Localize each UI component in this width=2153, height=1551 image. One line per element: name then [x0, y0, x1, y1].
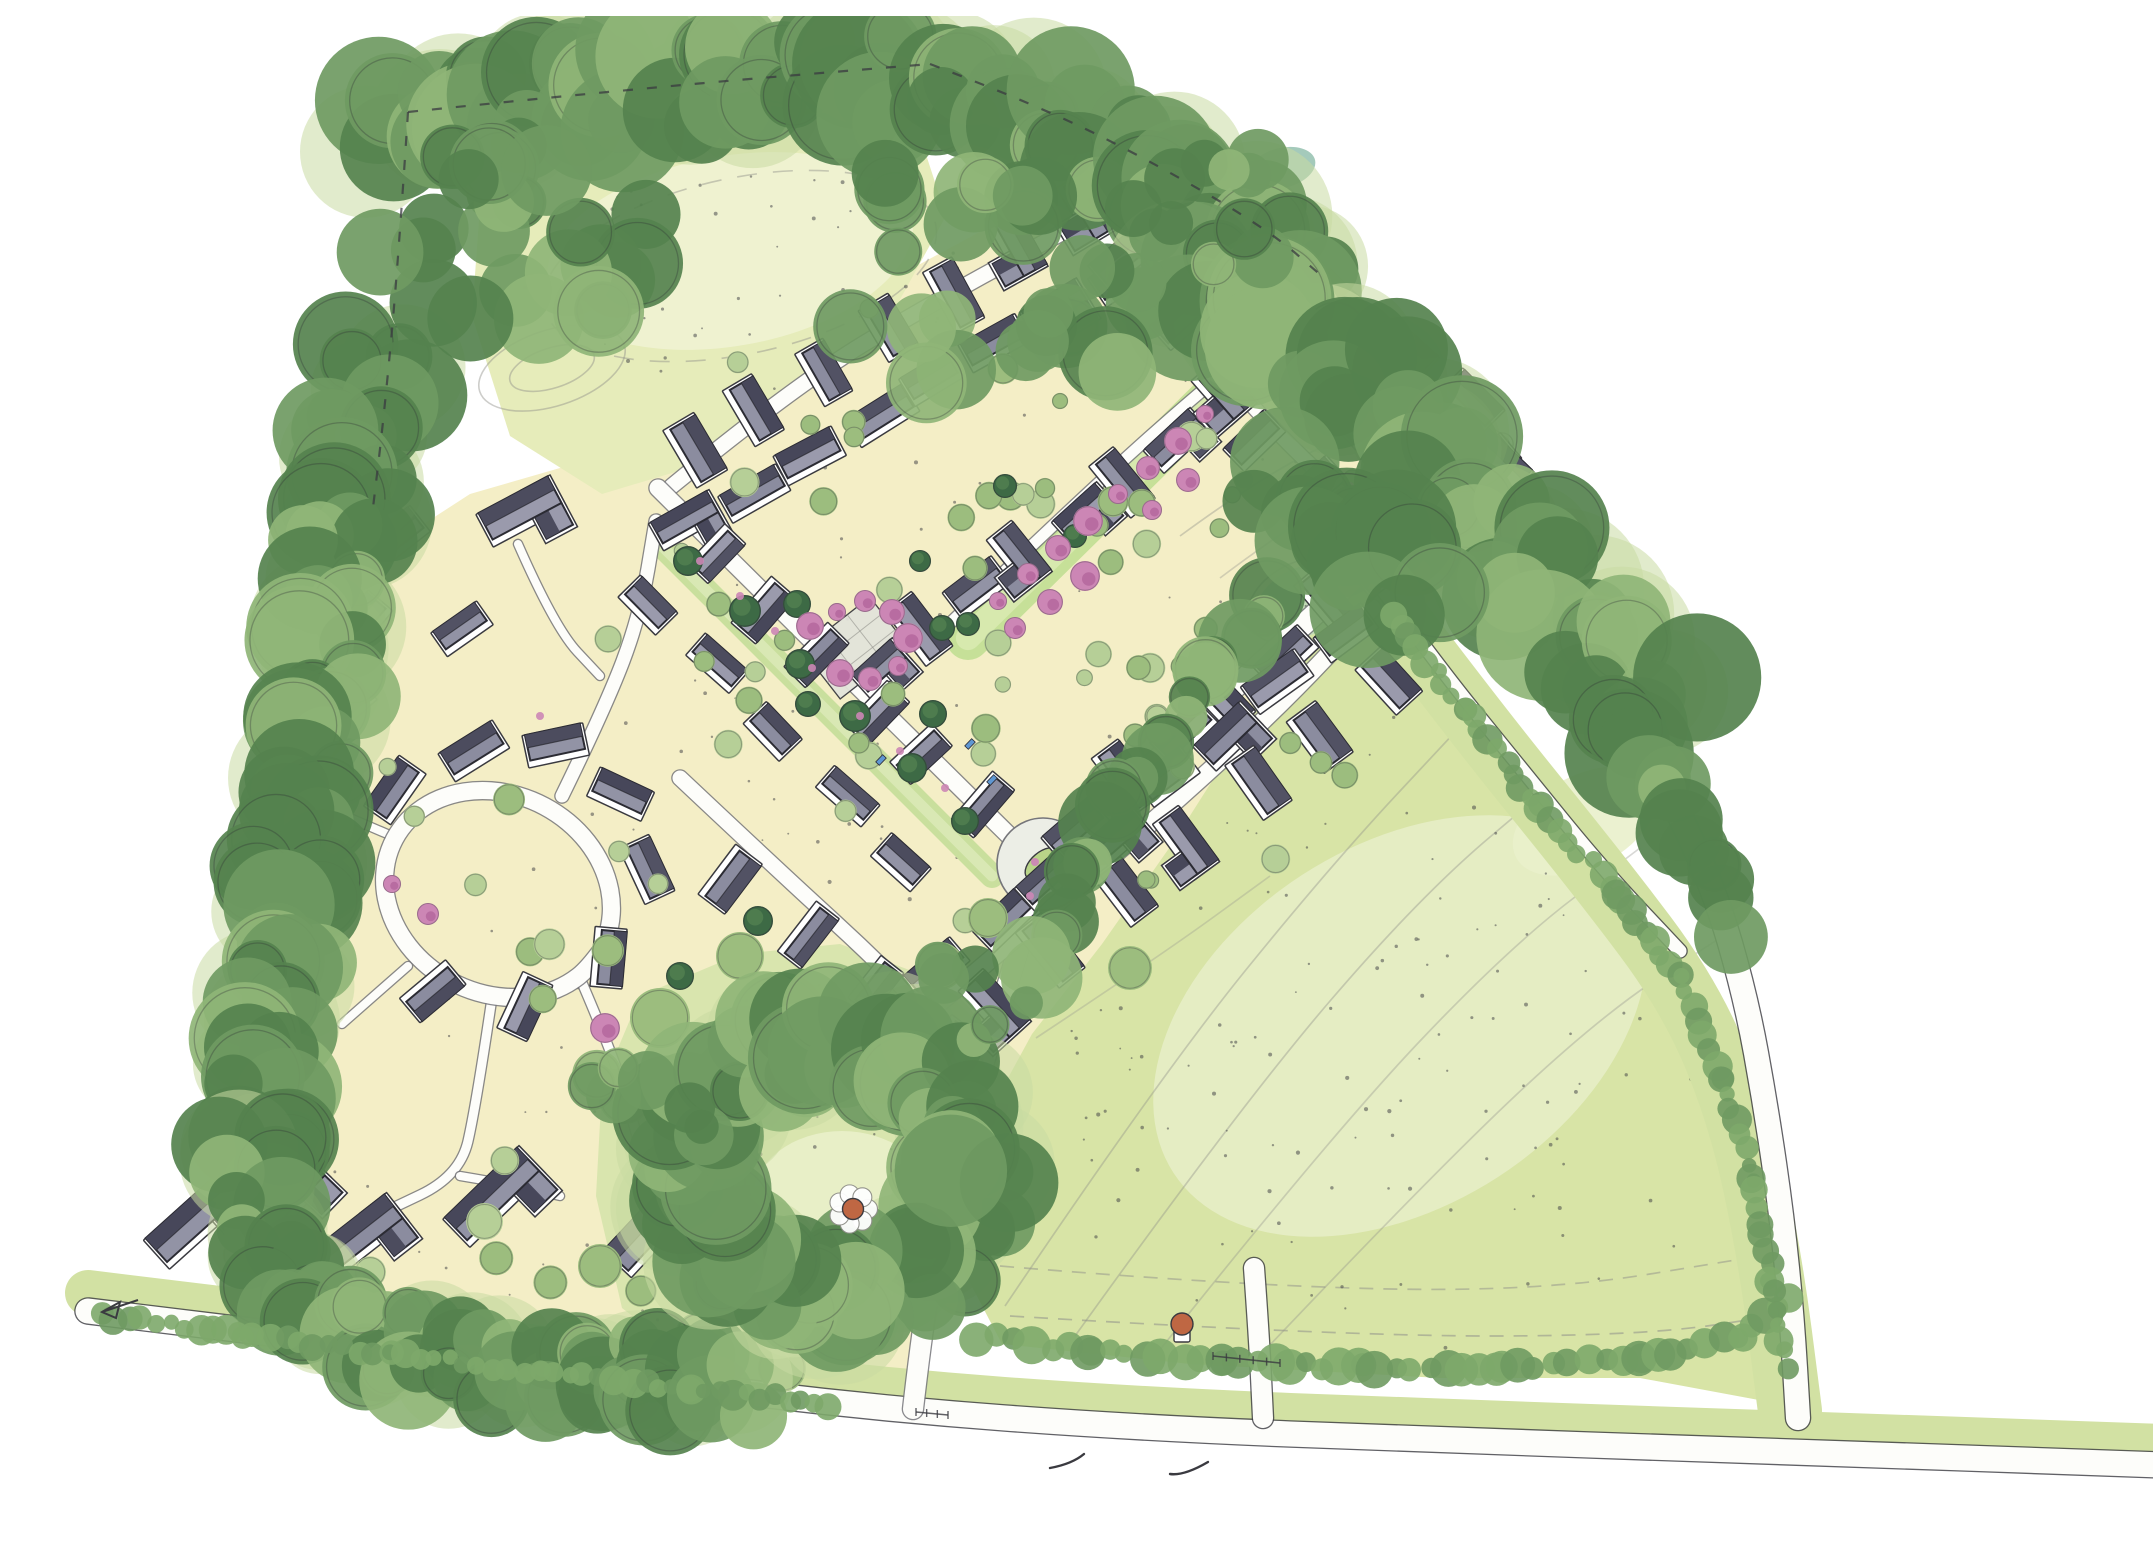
tree: [1309, 751, 1332, 774]
tree: [1195, 427, 1217, 449]
masterplan-figure: [40, 16, 2153, 1535]
tree: [1261, 844, 1290, 873]
tree: [834, 800, 857, 823]
tree: [1052, 393, 1068, 409]
tree: [490, 1146, 519, 1175]
tree: [479, 1241, 513, 1275]
tree: [594, 625, 622, 653]
tree: [1137, 870, 1156, 889]
tree: [533, 928, 565, 960]
tree: [466, 1203, 503, 1240]
tree: [1085, 641, 1112, 668]
tree: [744, 661, 765, 682]
tree: [648, 873, 669, 894]
flower-shrub: [1026, 892, 1034, 900]
tree: [592, 934, 624, 966]
flower-shrub: [771, 627, 779, 635]
tree: [493, 783, 525, 815]
tree: [1132, 529, 1161, 558]
tree: [706, 591, 731, 616]
tree: [1098, 549, 1124, 575]
tree: [1035, 478, 1056, 499]
tree: [971, 714, 1001, 744]
tree: [727, 351, 749, 373]
tree: [464, 873, 487, 896]
tree: [378, 758, 396, 776]
tree: [1279, 732, 1301, 754]
tree: [800, 415, 820, 435]
tree: [1108, 946, 1152, 990]
road-turn-arrow: [1050, 1454, 1084, 1468]
tree: [962, 556, 987, 581]
tree: [578, 1244, 622, 1288]
tree: [947, 504, 975, 532]
tree: [608, 840, 630, 862]
flower-shrub: [856, 712, 864, 720]
tree: [995, 676, 1012, 693]
tree: [881, 682, 906, 707]
tree: [970, 741, 996, 767]
tree: [843, 426, 864, 447]
tree: [403, 805, 425, 827]
tree: [848, 732, 870, 754]
tree: [1209, 518, 1229, 538]
tree: [809, 487, 838, 516]
tree: [529, 985, 557, 1013]
flower-shrub: [696, 557, 704, 565]
tree: [714, 730, 743, 759]
flower-shrub: [736, 592, 744, 600]
tree: [1331, 762, 1358, 789]
road-turn-arrow: [1170, 1462, 1208, 1474]
tree: [735, 687, 763, 715]
flower-shrub: [896, 747, 904, 755]
flower-shrub: [941, 784, 949, 792]
tree: [693, 651, 714, 672]
tree: [533, 1265, 567, 1299]
kiosk: [1171, 1313, 1193, 1342]
tree: [1076, 669, 1093, 686]
masterplan-svg: [40, 16, 2153, 1535]
flower-shrub: [808, 664, 816, 672]
flower-shrub: [536, 712, 544, 720]
tree: [1126, 655, 1151, 680]
tree: [730, 467, 760, 497]
